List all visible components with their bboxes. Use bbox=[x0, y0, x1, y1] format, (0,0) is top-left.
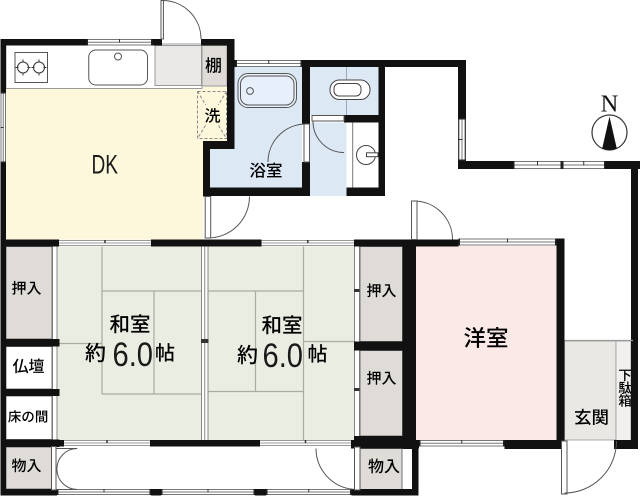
svg-text:6.0: 6.0 bbox=[263, 337, 304, 375]
svg-text:6.0: 6.0 bbox=[113, 336, 154, 374]
svg-text:N: N bbox=[601, 91, 619, 118]
svg-text:DK: DK bbox=[92, 150, 119, 180]
